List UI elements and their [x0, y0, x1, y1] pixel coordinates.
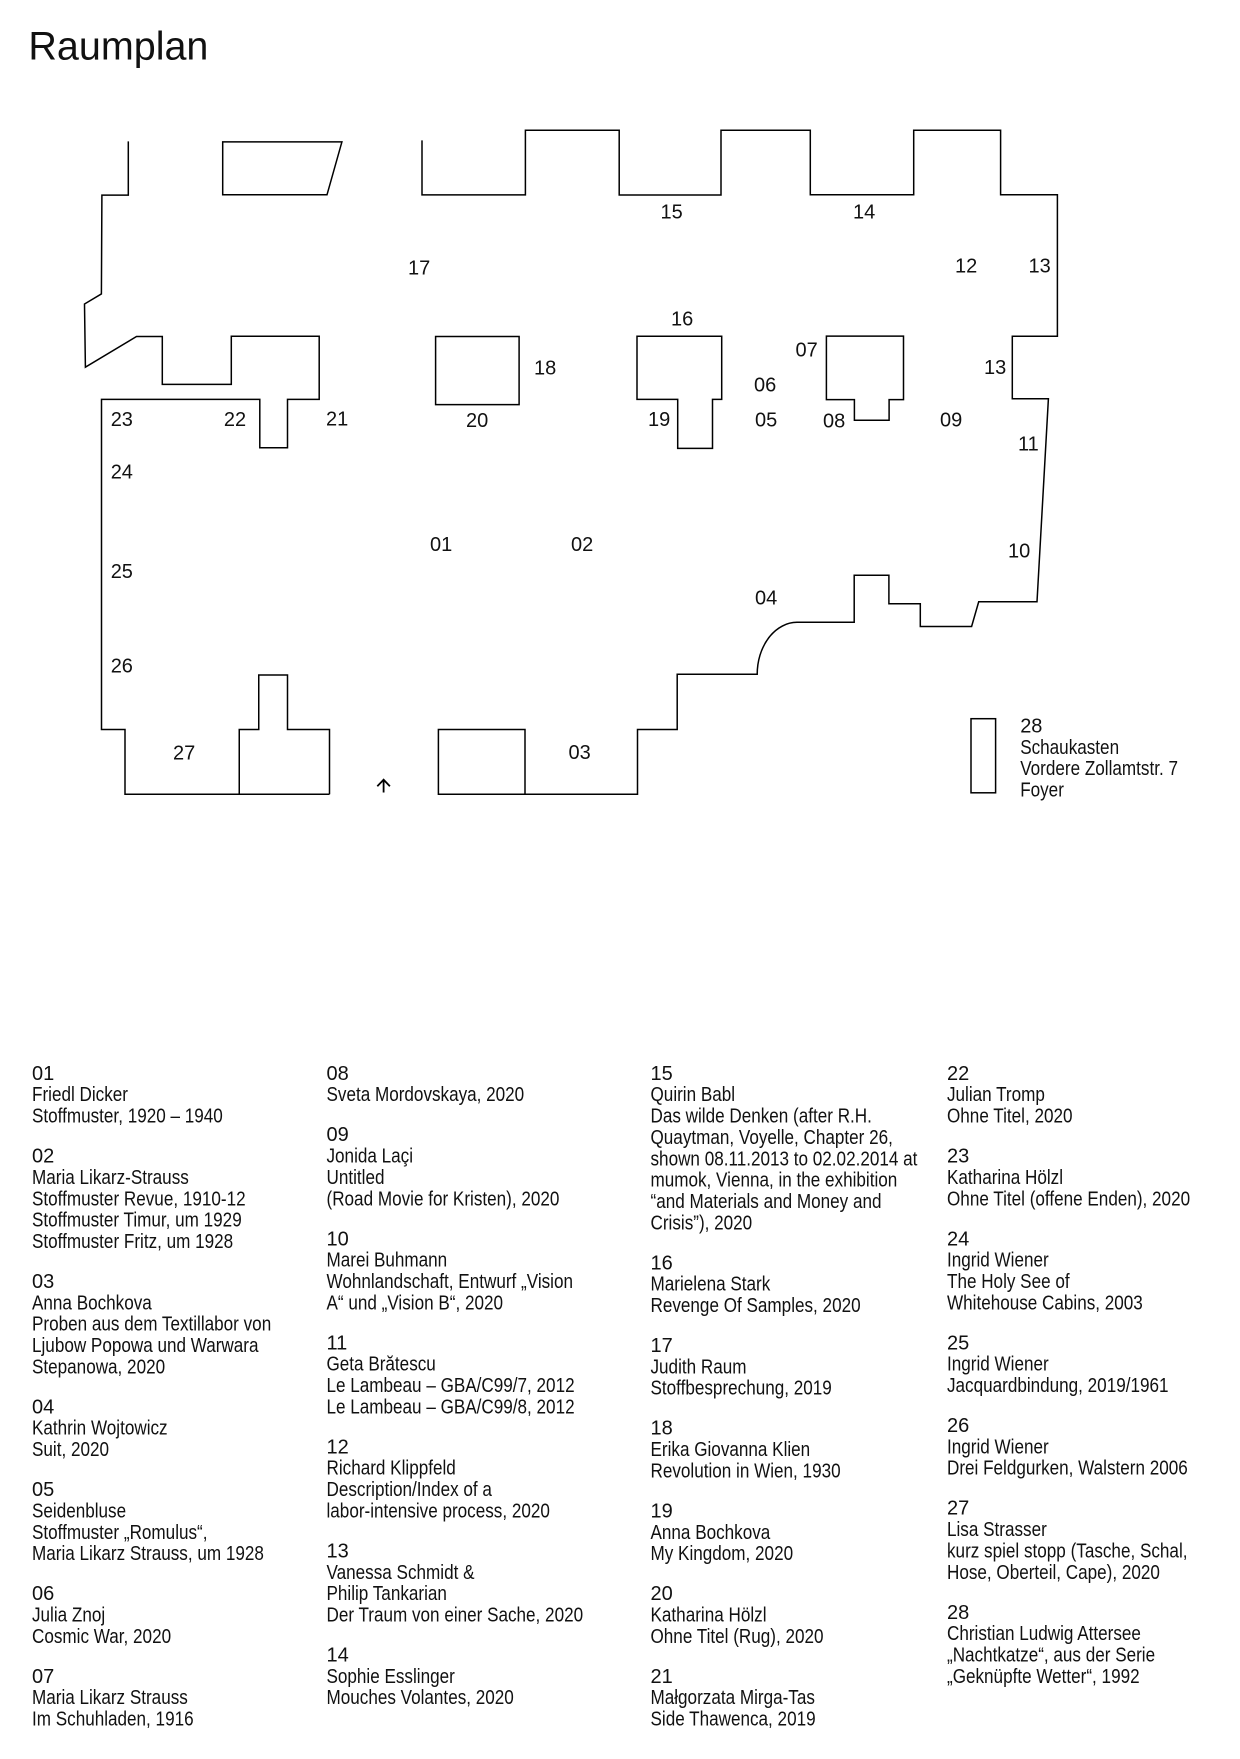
svg-text:28: 28: [1020, 716, 1042, 738]
svg-text:Hose, Oberteil, Cape), 2020: Hose, Oberteil, Cape), 2020: [947, 1562, 1160, 1584]
svg-text:Mouches Volantes, 2020: Mouches Volantes, 2020: [327, 1687, 514, 1709]
svg-text:15: 15: [651, 1063, 673, 1085]
svg-text:Proben aus dem Textillabor von: Proben aus dem Textillabor von: [32, 1314, 271, 1336]
svg-text:18: 18: [651, 1418, 673, 1440]
svg-text:01: 01: [32, 1063, 54, 1085]
svg-text:27: 27: [947, 1498, 969, 1520]
svg-text:08: 08: [327, 1063, 349, 1085]
svg-text:14: 14: [853, 202, 875, 224]
svg-text:Stoffmuster, 1920 – 1940: Stoffmuster, 1920 – 1940: [32, 1106, 223, 1128]
svg-text:01: 01: [430, 534, 452, 556]
svg-text:Kathrin Wojtowicz: Kathrin Wojtowicz: [32, 1418, 168, 1440]
svg-text:06: 06: [32, 1583, 54, 1605]
svg-text:23: 23: [947, 1146, 969, 1168]
svg-text:A“ und „Vision B“, 2020: A“ und „Vision B“, 2020: [327, 1292, 504, 1314]
svg-text:03: 03: [569, 742, 591, 764]
svg-text:Geta Brătescu: Geta Brătescu: [327, 1354, 436, 1376]
svg-text:Der Traum von einer Sache, 202: Der Traum von einer Sache, 2020: [327, 1605, 584, 1627]
svg-text:Julia Znoj: Julia Znoj: [32, 1605, 105, 1627]
svg-text:Ingrid Wiener: Ingrid Wiener: [947, 1354, 1049, 1376]
svg-text:Schaukasten: Schaukasten: [1020, 737, 1119, 759]
svg-text:Le Lambeau – GBA/C99/7, 2012: Le Lambeau – GBA/C99/7, 2012: [327, 1375, 575, 1397]
svg-text:Das wilde Denken (after R.H.: Das wilde Denken (after R.H.: [651, 1106, 872, 1128]
svg-text:My Kingdom, 2020: My Kingdom, 2020: [651, 1543, 794, 1565]
svg-text:16: 16: [651, 1252, 673, 1274]
svg-text:Maria Likarz Strauss: Maria Likarz Strauss: [32, 1687, 188, 1709]
svg-text:Katharina Hölzl: Katharina Hölzl: [651, 1605, 767, 1627]
svg-text:Revenge Of Samples, 2020: Revenge Of Samples, 2020: [651, 1295, 861, 1317]
svg-text:21: 21: [651, 1666, 673, 1688]
svg-text:(Road Movie for Kristen), 2020: (Road Movie for Kristen), 2020: [327, 1188, 560, 1210]
svg-text:17: 17: [408, 258, 430, 280]
svg-text:Raumplan: Raumplan: [28, 25, 208, 69]
svg-text:„Nachtkatze“, aus der Serie: „Nachtkatze“, aus der Serie: [947, 1645, 1155, 1667]
svg-text:02: 02: [571, 534, 593, 556]
svg-text:05: 05: [32, 1479, 54, 1501]
svg-text:Revolution in Wien, 1930: Revolution in Wien, 1930: [651, 1460, 841, 1482]
svg-text:11: 11: [327, 1332, 348, 1354]
svg-text:Julian Tromp: Julian Tromp: [947, 1084, 1045, 1106]
svg-text:24: 24: [947, 1228, 969, 1250]
svg-text:21: 21: [326, 409, 348, 431]
svg-text:Untitled: Untitled: [327, 1167, 385, 1189]
svg-text:Stoffmuster Timur, um 1929: Stoffmuster Timur, um 1929: [32, 1210, 242, 1232]
svg-text:23: 23: [111, 409, 133, 431]
svg-text:kurz spiel stopp (Tasche, Scha: kurz spiel stopp (Tasche, Schal,: [947, 1540, 1188, 1562]
svg-text:13: 13: [327, 1540, 349, 1562]
svg-text:labor-intensive process, 2020: labor-intensive process, 2020: [327, 1500, 550, 1522]
svg-text:Christian Ludwig Attersee: Christian Ludwig Attersee: [947, 1623, 1141, 1645]
svg-text:11: 11: [1018, 434, 1039, 456]
svg-text:Ljubow Popowa und Warwara: Ljubow Popowa und Warwara: [32, 1335, 259, 1357]
svg-text:03: 03: [32, 1271, 54, 1293]
svg-text:Judith Raum: Judith Raum: [651, 1356, 747, 1378]
svg-text:07: 07: [796, 340, 818, 362]
svg-text:15: 15: [661, 202, 683, 224]
svg-text:Stoffmuster Revue, 1910-12: Stoffmuster Revue, 1910-12: [32, 1188, 246, 1210]
svg-text:Erika Giovanna Klien: Erika Giovanna Klien: [651, 1439, 811, 1461]
svg-text:26: 26: [947, 1415, 969, 1437]
svg-text:13: 13: [984, 357, 1006, 379]
svg-text:26: 26: [111, 656, 133, 678]
svg-text:Sveta Mordovskaya, 2020: Sveta Mordovskaya, 2020: [327, 1084, 525, 1106]
svg-text:18: 18: [534, 358, 556, 380]
svg-text:02: 02: [32, 1146, 54, 1168]
svg-text:The Holy See of: The Holy See of: [947, 1271, 1070, 1293]
svg-text:Suit, 2020: Suit, 2020: [32, 1439, 109, 1461]
svg-text:Sophie Esslinger: Sophie Esslinger: [327, 1666, 456, 1688]
svg-text:10: 10: [327, 1228, 349, 1250]
svg-text:04: 04: [32, 1396, 54, 1418]
svg-text:Marielena Stark: Marielena Stark: [651, 1274, 772, 1296]
svg-text:19: 19: [651, 1500, 673, 1522]
svg-text:Maria Likarz Strauss, um 1928: Maria Likarz Strauss, um 1928: [32, 1543, 264, 1565]
svg-text:Anna Bochkova: Anna Bochkova: [651, 1522, 772, 1544]
svg-text:„Geknüpfte Wetter“, 1992: „Geknüpfte Wetter“, 1992: [947, 1666, 1140, 1688]
svg-text:22: 22: [224, 409, 246, 431]
svg-text:Maria Likarz-Strauss: Maria Likarz-Strauss: [32, 1167, 189, 1189]
svg-text:Ohne Titel (offene Enden), 202: Ohne Titel (offene Enden), 2020: [947, 1188, 1190, 1210]
svg-text:Le Lambeau – GBA/C99/8, 2012: Le Lambeau – GBA/C99/8, 2012: [327, 1396, 575, 1418]
svg-text:Lisa Strasser: Lisa Strasser: [947, 1519, 1047, 1541]
svg-text:Marei Buhmann: Marei Buhmann: [327, 1250, 448, 1272]
svg-text:Cosmic War, 2020: Cosmic War, 2020: [32, 1626, 171, 1648]
svg-text:22: 22: [947, 1063, 969, 1085]
svg-text:24: 24: [111, 462, 133, 484]
svg-text:19: 19: [648, 409, 670, 431]
svg-text:Ohne Titel (Rug), 2020: Ohne Titel (Rug), 2020: [651, 1626, 824, 1648]
svg-text:Ohne Titel, 2020: Ohne Titel, 2020: [947, 1106, 1073, 1128]
svg-text:06: 06: [754, 375, 776, 397]
svg-text:Jonida Laçi: Jonida Laçi: [327, 1146, 414, 1168]
svg-text:Małgorzata Mirga-Tas: Małgorzata Mirga-Tas: [651, 1687, 815, 1709]
svg-text:10: 10: [1008, 541, 1030, 563]
svg-text:Quaytman, Voyelle, Chapter 26,: Quaytman, Voyelle, Chapter 26,: [651, 1127, 893, 1149]
svg-text:“and Materials and Money and: “and Materials and Money and: [651, 1191, 882, 1213]
svg-text:Stoffbesprechung, 2019: Stoffbesprechung, 2019: [651, 1378, 832, 1400]
svg-text:Side Thawenca, 2019: Side Thawenca, 2019: [651, 1709, 816, 1731]
svg-text:20: 20: [651, 1583, 673, 1605]
svg-text:Foyer: Foyer: [1020, 779, 1064, 801]
svg-text:Friedl Dicker: Friedl Dicker: [32, 1084, 128, 1106]
svg-text:Quirin Babl: Quirin Babl: [651, 1084, 736, 1106]
svg-text:12: 12: [955, 256, 977, 278]
svg-text:Description/Index of a: Description/Index of a: [327, 1479, 493, 1501]
svg-text:Im Schuhladen, 1916: Im Schuhladen, 1916: [32, 1709, 194, 1731]
svg-text:shown 08.11.2013 to 02.02.2014: shown 08.11.2013 to 02.02.2014 at: [651, 1148, 918, 1170]
svg-text:04: 04: [755, 588, 777, 610]
svg-text:16: 16: [671, 309, 693, 331]
svg-text:Drei Feldgurken, Walstern 2006: Drei Feldgurken, Walstern 2006: [947, 1458, 1188, 1480]
svg-text:Stepanowa, 2020: Stepanowa, 2020: [32, 1356, 165, 1378]
svg-text:mumok, Vienna, in the exhibiti: mumok, Vienna, in the exhibition: [651, 1170, 898, 1192]
svg-text:Jacquardbindung, 2019/1961: Jacquardbindung, 2019/1961: [947, 1375, 1169, 1397]
svg-text:13: 13: [1029, 256, 1051, 278]
svg-text:14: 14: [327, 1645, 349, 1667]
svg-text:Richard Klippfeld: Richard Klippfeld: [327, 1458, 456, 1480]
svg-text:27: 27: [173, 743, 195, 765]
svg-text:Katharina Hölzl: Katharina Hölzl: [947, 1167, 1063, 1189]
svg-text:09: 09: [940, 410, 962, 432]
svg-text:08: 08: [823, 411, 845, 433]
svg-text:Ingrid Wiener: Ingrid Wiener: [947, 1250, 1049, 1272]
svg-text:12: 12: [327, 1436, 349, 1458]
svg-text:Crisis”), 2020: Crisis”), 2020: [651, 1212, 753, 1234]
svg-text:Vanessa Schmidt &: Vanessa Schmidt &: [327, 1562, 476, 1584]
svg-text:Stoffmuster „Romulus“,: Stoffmuster „Romulus“,: [32, 1522, 208, 1544]
svg-text:Stoffmuster Fritz, um 1928: Stoffmuster Fritz, um 1928: [32, 1231, 233, 1253]
svg-text:05: 05: [755, 410, 777, 432]
svg-text:Ingrid Wiener: Ingrid Wiener: [947, 1436, 1049, 1458]
svg-text:17: 17: [651, 1335, 673, 1357]
svg-text:09: 09: [327, 1124, 349, 1146]
svg-text:Vordere Zollamtstr. 7: Vordere Zollamtstr. 7: [1020, 758, 1178, 780]
svg-text:07: 07: [32, 1666, 54, 1688]
svg-text:20: 20: [466, 410, 488, 432]
svg-text:Seidenbluse: Seidenbluse: [32, 1500, 126, 1522]
svg-text:Wohnlandschaft, Entwurf „Visio: Wohnlandschaft, Entwurf „Vision: [327, 1271, 574, 1293]
svg-text:Anna Bochkova: Anna Bochkova: [32, 1292, 153, 1314]
svg-text:Whitehouse Cabins, 2003: Whitehouse Cabins, 2003: [947, 1292, 1143, 1314]
svg-text:25: 25: [111, 561, 133, 583]
svg-text:25: 25: [947, 1332, 969, 1354]
svg-text:28: 28: [947, 1602, 969, 1624]
svg-text:Philip Tankarian: Philip Tankarian: [327, 1583, 447, 1605]
